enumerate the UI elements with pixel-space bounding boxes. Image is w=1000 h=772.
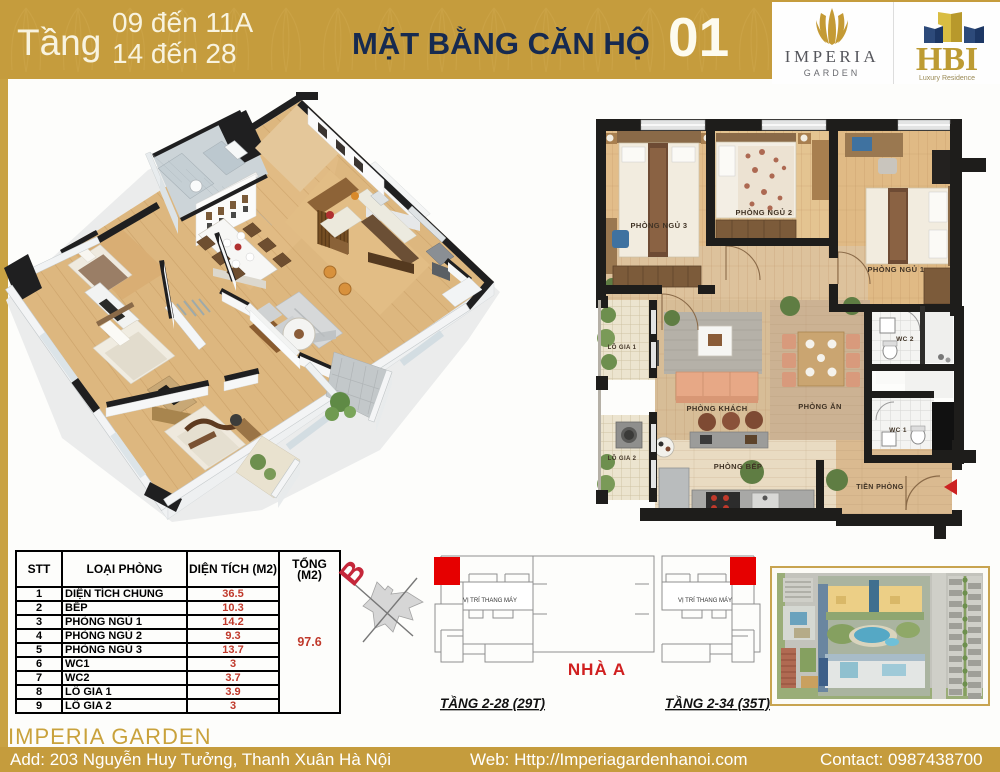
svg-text:VỊ TRÍ THANG MÁY: VỊ TRÍ THANG MÁY: [463, 597, 517, 604]
svg-text:PHÒNG ĂN: PHÒNG ĂN: [798, 402, 842, 411]
svg-text:LÔ GIA 2: LÔ GIA 2: [608, 454, 637, 462]
svg-text:TẦNG 2-34 (35T): TẦNG 2-34 (35T): [665, 696, 770, 711]
svg-text:VỊ TRÍ THANG MÁY: VỊ TRÍ THANG MÁY: [678, 597, 732, 604]
svg-text:HBI: HBI: [916, 41, 978, 78]
svg-text:TẦNG 2-28 (29T): TẦNG 2-28 (29T): [440, 696, 546, 711]
svg-text:NHÀ A: NHÀ A: [568, 660, 626, 679]
svg-text:GARDEN: GARDEN: [804, 68, 861, 78]
svg-text:WC 1: WC 1: [889, 427, 907, 434]
svg-text:LÔ GIA 1: LÔ GIA 1: [608, 343, 637, 351]
svg-text:WC 2: WC 2: [896, 336, 914, 343]
svg-text:Luxury Residence: Luxury Residence: [919, 75, 975, 82]
svg-text:PHÒNG NGỦ 2: PHÒNG NGỦ 2: [736, 208, 793, 217]
svg-text:IMPERIA: IMPERIA: [785, 47, 879, 66]
svg-text:PHÒNG NGỦ 1: PHÒNG NGỦ 1: [868, 265, 925, 274]
svg-text:PHÒNG NGỦ 3: PHÒNG NGỦ 3: [631, 221, 688, 230]
svg-text:PHÒNG BẾP: PHÒNG BẾP: [714, 461, 763, 471]
svg-text:PHÒNG KHÁCH: PHÒNG KHÁCH: [686, 404, 747, 413]
svg-text:B: B: [335, 554, 372, 592]
